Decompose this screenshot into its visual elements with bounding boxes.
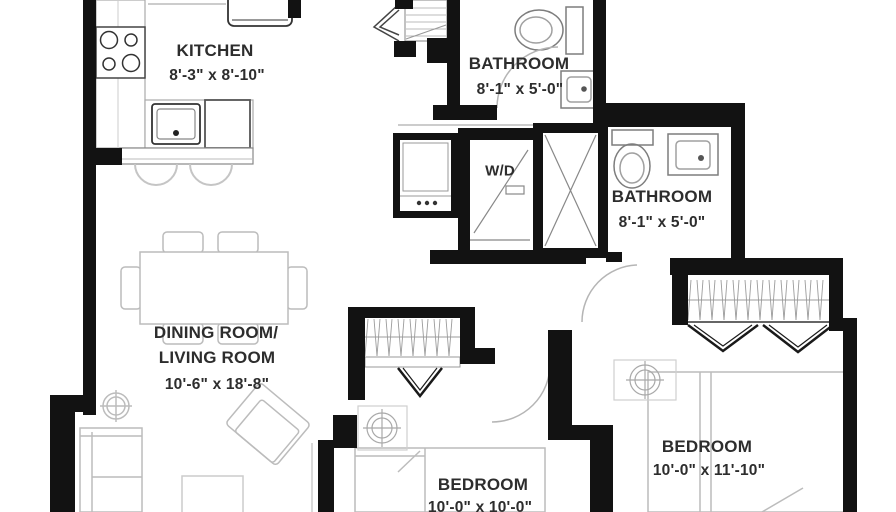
shower-icon xyxy=(533,123,608,258)
door-swing-icon xyxy=(492,364,550,422)
dining-living-dims: 10'-6" x 18'-8" xyxy=(165,376,269,394)
bedroom-middle-dims: 10'-0" x 10'-0" xyxy=(428,499,532,512)
vanity-sink-icon xyxy=(561,71,595,108)
closet-icon xyxy=(688,280,829,320)
round-table-icon xyxy=(100,390,132,422)
kitchen-name: KITCHEN xyxy=(177,41,254,61)
dining-room-name: DINING ROOM/ xyxy=(154,323,278,343)
living-room-name: LIVING ROOM xyxy=(159,348,275,368)
rug-icon xyxy=(182,476,243,512)
floor-plan: KITCHEN 8'-3" x 8'-10" BATHROOM 8'-1" x … xyxy=(0,0,896,512)
kitchen-dims: 8'-3" x 8'-10" xyxy=(169,67,265,85)
closet-right-bedroom xyxy=(688,280,833,352)
utility-appliance-icon xyxy=(393,133,458,218)
living-room-furniture xyxy=(80,382,312,512)
dishwasher-icon xyxy=(205,100,250,148)
vanity-sink-icon xyxy=(668,134,718,175)
washer-dryer-label: W/D xyxy=(485,163,515,180)
bedroom-right-dims: 10'-0" x 11'-10" xyxy=(653,462,765,480)
refrigerator-icon xyxy=(228,0,292,26)
closet-middle-bedroom xyxy=(365,319,460,396)
bifold-door-icon xyxy=(688,325,833,352)
floor-plan-drawing xyxy=(0,0,896,512)
armchair-icon xyxy=(225,382,310,466)
bathroom-right-fixtures xyxy=(612,130,718,188)
bar-stool-icon xyxy=(135,164,232,185)
sofa-icon xyxy=(80,428,142,512)
angled-door-icon xyxy=(374,4,399,41)
bedroom-right-name: BEDROOM xyxy=(662,437,752,457)
bathroom-right-dims: 8'-1" x 5'-0" xyxy=(619,214,706,232)
closet-icon xyxy=(365,319,460,356)
bathroom-right-name: BATHROOM xyxy=(612,187,712,207)
bathroom-top-dims: 8'-1" x 5'-0" xyxy=(477,81,564,99)
toilet-icon xyxy=(612,130,653,188)
bathroom-top-name: BATHROOM xyxy=(469,54,569,74)
door-swing-icon xyxy=(582,265,637,322)
ceiling-light-icon xyxy=(358,406,407,450)
ceiling-lights xyxy=(358,360,676,450)
stove-icon xyxy=(96,27,145,78)
laundry-area xyxy=(393,123,608,258)
kitchen-fixtures xyxy=(96,0,292,185)
dining-table-icon xyxy=(140,252,288,324)
bedroom-middle-name: BEDROOM xyxy=(438,475,528,495)
bifold-door-icon xyxy=(398,368,442,396)
counter-bar xyxy=(120,148,253,164)
